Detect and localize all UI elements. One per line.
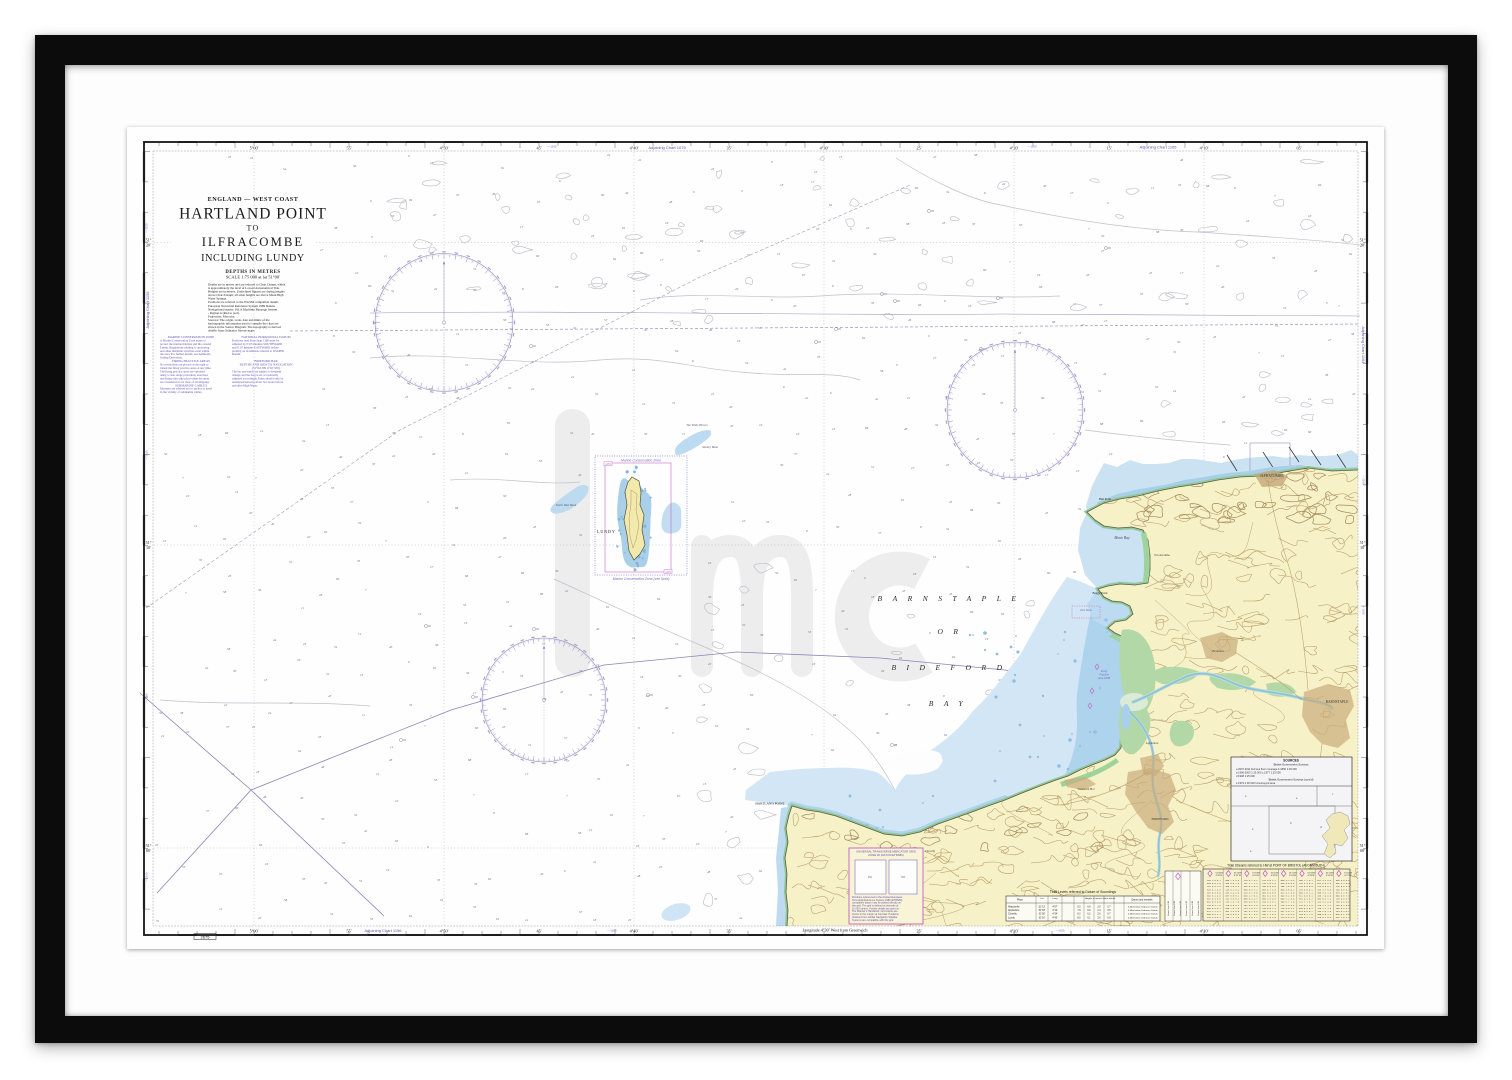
svg-text:Practice: Practice bbox=[1099, 673, 1109, 677]
svg-text:59: 59 bbox=[1078, 507, 1082, 511]
svg-text:31: 31 bbox=[156, 919, 160, 923]
svg-text:BAY: BAY bbox=[929, 699, 973, 708]
svg-text:4°25′W: 4°25′W bbox=[1308, 875, 1316, 877]
svg-text:Stanley Bank: Stanley Bank bbox=[702, 445, 718, 449]
svg-text:4.66m below Ordnance Datum: 4.66m below Ordnance Datum bbox=[1128, 913, 1158, 916]
svg-text:67: 67 bbox=[677, 794, 681, 798]
svg-text:52: 52 bbox=[322, 387, 326, 391]
svg-text:50: 50 bbox=[1177, 340, 1181, 344]
svg-text:51: 51 bbox=[731, 500, 735, 504]
svg-text:7: 7 bbox=[643, 814, 645, 818]
svg-text:7: 7 bbox=[255, 476, 257, 480]
svg-text:27: 27 bbox=[911, 466, 915, 470]
svg-text:38: 38 bbox=[907, 703, 911, 707]
svg-text:32: 32 bbox=[452, 543, 456, 547]
svg-text:19: 19 bbox=[418, 612, 422, 616]
svg-text:56: 56 bbox=[982, 392, 986, 396]
svg-text:13: 13 bbox=[1076, 469, 1080, 473]
svg-text:Braunton: Braunton bbox=[1212, 649, 1224, 653]
svg-text:7: 7 bbox=[815, 588, 817, 592]
svg-text:4°20': 4°20' bbox=[1010, 146, 1019, 151]
svg-text:68: 68 bbox=[1206, 184, 1210, 188]
svg-text:10: 10 bbox=[186, 494, 190, 498]
svg-text:Hours from HW: Hours from HW bbox=[1167, 900, 1170, 916]
svg-text:20: 20 bbox=[258, 916, 262, 920]
svg-text:51: 51 bbox=[871, 465, 875, 469]
svg-text:37: 37 bbox=[794, 452, 798, 456]
svg-text:9: 9 bbox=[672, 731, 674, 735]
svg-text:22: 22 bbox=[805, 396, 809, 400]
svg-text:102 1.9 2.7: 102 1.9 2.7 bbox=[1336, 916, 1350, 919]
svg-text:—1165: —1165 bbox=[1027, 145, 1037, 149]
svg-text:67: 67 bbox=[579, 910, 583, 914]
svg-text:Woolacombe: Woolacombe bbox=[1154, 553, 1170, 557]
svg-text:49: 49 bbox=[729, 405, 733, 409]
svg-text:17: 17 bbox=[1180, 271, 1184, 275]
svg-text:43: 43 bbox=[1242, 395, 1246, 399]
svg-text:d 1948 1:25 000: d 1948 1:25 000 bbox=[1236, 774, 1255, 778]
svg-text:45: 45 bbox=[560, 690, 564, 694]
svg-text:British Government Surveys: British Government Surveys bbox=[1274, 763, 1309, 767]
svg-text:66: 66 bbox=[465, 574, 469, 578]
svg-text:45: 45 bbox=[976, 437, 980, 441]
svg-text:4°30': 4°30' bbox=[820, 146, 829, 151]
svg-text:26: 26 bbox=[1018, 557, 1022, 561]
svg-text:40: 40 bbox=[1043, 184, 1047, 188]
svg-text:10: 10 bbox=[759, 423, 763, 427]
svg-text:25': 25' bbox=[917, 929, 922, 934]
svg-text:61: 61 bbox=[901, 498, 905, 502]
svg-text:40: 40 bbox=[389, 645, 393, 649]
svg-text:a 2007-2011 Full sea floor: a 2007-2011 Full sea floor coverage b 18… bbox=[1236, 767, 1297, 771]
svg-text:27: 27 bbox=[1070, 191, 1074, 195]
svg-text:126 7.7 1.8: 126 7.7 1.8 bbox=[1225, 916, 1239, 919]
svg-text:4°23′W: 4°23′W bbox=[1271, 875, 1279, 877]
svg-text:20: 20 bbox=[300, 468, 304, 472]
svg-text:19: 19 bbox=[985, 637, 989, 641]
svg-text:43: 43 bbox=[902, 589, 906, 593]
svg-text:51°03′N: 51°03′N bbox=[1289, 873, 1297, 875]
svg-text:Adjoining Chart 1156: Adjoining Chart 1156 bbox=[364, 928, 402, 933]
svg-text:33: 33 bbox=[437, 878, 441, 882]
svg-text:46: 46 bbox=[709, 328, 713, 332]
svg-text:47: 47 bbox=[289, 701, 293, 705]
svg-text:TO: TO bbox=[247, 224, 260, 233]
svg-text:52: 52 bbox=[595, 392, 599, 396]
svg-text:52: 52 bbox=[1155, 385, 1159, 389]
svg-text:62: 62 bbox=[433, 666, 437, 670]
svg-text:10: 10 bbox=[696, 842, 700, 846]
svg-text:66: 66 bbox=[225, 431, 229, 435]
svg-text:10: 10 bbox=[796, 432, 800, 436]
svg-text:32: 32 bbox=[935, 423, 939, 427]
svg-text:—1165: —1165 bbox=[547, 145, 557, 149]
svg-text:40: 40 bbox=[271, 522, 275, 526]
svg-text:—1165: —1165 bbox=[145, 450, 149, 460]
svg-text:05': 05' bbox=[1297, 929, 1302, 934]
svg-text:36: 36 bbox=[997, 501, 1001, 505]
svg-text:47: 47 bbox=[433, 213, 437, 217]
svg-text:58: 58 bbox=[223, 590, 227, 594]
svg-text:12: 12 bbox=[632, 368, 636, 372]
svg-text:19: 19 bbox=[1109, 452, 1113, 456]
svg-text:Baggy Point: Baggy Point bbox=[1093, 591, 1108, 595]
svg-text:64: 64 bbox=[833, 713, 837, 717]
svg-text:43: 43 bbox=[328, 694, 332, 698]
svg-text:55: 55 bbox=[1140, 292, 1144, 296]
svg-text:66: 66 bbox=[540, 592, 544, 596]
svg-text:20: 20 bbox=[735, 287, 739, 291]
svg-text:60: 60 bbox=[475, 726, 479, 730]
svg-text:—1165: —1165 bbox=[145, 223, 149, 233]
svg-text:4°20': 4°20' bbox=[1010, 929, 1019, 934]
svg-text:18: 18 bbox=[780, 183, 784, 187]
svg-text:278 5.9 6.3: 278 5.9 6.3 bbox=[1281, 916, 1295, 919]
svg-text:56: 56 bbox=[503, 318, 507, 322]
svg-text:54: 54 bbox=[330, 912, 334, 916]
svg-text:13: 13 bbox=[711, 628, 715, 632]
svg-text:22: 22 bbox=[638, 158, 642, 162]
svg-text:59: 59 bbox=[644, 432, 648, 436]
svg-text:51°03′N: 51°03′N bbox=[1216, 873, 1224, 875]
svg-text:44: 44 bbox=[1002, 182, 1006, 186]
svg-text:16: 16 bbox=[636, 844, 640, 848]
svg-text:Adjoining Chart 1156: Adjoining Chart 1156 bbox=[145, 291, 150, 329]
svg-text:59: 59 bbox=[1010, 458, 1014, 462]
svg-text:6: 6 bbox=[371, 235, 373, 239]
svg-text:9: 9 bbox=[1326, 301, 1328, 305]
svg-text:17: 17 bbox=[705, 297, 709, 301]
svg-text:51°03′N: 51°03′N bbox=[1234, 873, 1242, 875]
svg-text:in the vicinity of submarine c: in the vicinity of submarine cables. bbox=[160, 390, 202, 394]
svg-text:8: 8 bbox=[692, 359, 694, 363]
svg-text:69: 69 bbox=[750, 693, 754, 697]
svg-text:42: 42 bbox=[364, 829, 368, 833]
svg-text:38: 38 bbox=[1351, 332, 1355, 336]
svg-text:27: 27 bbox=[430, 565, 434, 569]
svg-text:55: 55 bbox=[1272, 256, 1276, 260]
svg-text:62: 62 bbox=[759, 869, 763, 873]
svg-text:38: 38 bbox=[1156, 230, 1160, 234]
svg-text:54: 54 bbox=[675, 349, 679, 353]
svg-text:15: 15 bbox=[326, 423, 330, 427]
svg-text:47: 47 bbox=[1081, 323, 1085, 327]
svg-text:13: 13 bbox=[360, 673, 364, 677]
svg-text:27: 27 bbox=[933, 356, 937, 360]
svg-text:68: 68 bbox=[1100, 422, 1104, 426]
svg-text:25: 25 bbox=[591, 234, 595, 238]
svg-text:6: 6 bbox=[335, 301, 337, 305]
svg-text:8: 8 bbox=[771, 160, 773, 164]
svg-text:55: 55 bbox=[715, 724, 719, 728]
svg-text:4°40': 4°40' bbox=[630, 146, 639, 151]
svg-text:51: 51 bbox=[672, 401, 676, 405]
svg-text:10: 10 bbox=[355, 271, 359, 275]
svg-text:25: 25 bbox=[628, 918, 632, 922]
svg-text:11: 11 bbox=[682, 432, 685, 436]
svg-text:51°03′N: 51°03′N bbox=[1252, 873, 1260, 875]
svg-text:BIDEFORD: BIDEFORD bbox=[891, 663, 1012, 672]
svg-text:ILFRACOMBE: ILFRACOMBE bbox=[202, 235, 304, 249]
svg-text:Datum and remarks: Datum and remarks bbox=[1132, 899, 1154, 902]
svg-text:337 4.0 7.7: 337 4.0 7.7 bbox=[1244, 916, 1258, 919]
svg-text:7: 7 bbox=[1338, 304, 1340, 308]
svg-text:13: 13 bbox=[703, 782, 707, 786]
svg-text:37: 37 bbox=[350, 500, 354, 504]
svg-text:54: 54 bbox=[334, 645, 338, 649]
svg-text:56: 56 bbox=[353, 164, 357, 168]
svg-text:Longitude 4°30′ West from Gree: Longitude 4°30′ West from Greenwich bbox=[803, 928, 869, 933]
svg-text:4°24': 4°24' bbox=[1052, 914, 1058, 916]
svg-text:54: 54 bbox=[966, 565, 970, 569]
svg-text:21: 21 bbox=[711, 392, 715, 396]
svg-text:8: 8 bbox=[850, 227, 852, 231]
svg-text:21: 21 bbox=[907, 396, 911, 400]
svg-text:49: 49 bbox=[432, 452, 436, 456]
svg-text:29: 29 bbox=[297, 658, 301, 662]
svg-text:62: 62 bbox=[831, 748, 835, 752]
svg-text:8: 8 bbox=[333, 334, 335, 338]
svg-text:00': 00' bbox=[146, 848, 151, 853]
svg-text:52: 52 bbox=[289, 560, 293, 564]
svg-text:15: 15 bbox=[1074, 361, 1078, 365]
svg-text:52: 52 bbox=[742, 623, 746, 627]
svg-text:62: 62 bbox=[488, 877, 492, 881]
svg-text:60: 60 bbox=[970, 610, 974, 614]
svg-text:6: 6 bbox=[633, 289, 635, 293]
svg-text:35: 35 bbox=[1000, 401, 1004, 405]
svg-text:Heights in metres above datum: Heights in metres above datum bbox=[1085, 897, 1115, 900]
svg-text:4°50': 4°50' bbox=[440, 146, 449, 151]
svg-text:58: 58 bbox=[880, 369, 884, 373]
svg-text:37: 37 bbox=[714, 897, 718, 901]
svg-text:52: 52 bbox=[227, 475, 231, 479]
svg-text:16: 16 bbox=[640, 675, 644, 679]
svg-text:8: 8 bbox=[462, 432, 464, 436]
svg-text:8: 8 bbox=[1015, 634, 1017, 638]
svg-text:40: 40 bbox=[591, 432, 595, 436]
svg-text:51°03′N: 51°03′N bbox=[1271, 873, 1279, 875]
svg-text:40: 40 bbox=[1221, 285, 1225, 289]
svg-text:—1165: —1165 bbox=[1362, 605, 1366, 615]
svg-text:51: 51 bbox=[419, 435, 423, 439]
svg-text:35: 35 bbox=[372, 462, 376, 466]
svg-text:27: 27 bbox=[1328, 338, 1332, 342]
svg-text:49: 49 bbox=[841, 609, 845, 613]
svg-text:6: 6 bbox=[830, 391, 832, 395]
svg-text:INCLUDING LUNDY: INCLUDING LUNDY bbox=[201, 253, 305, 264]
svg-text:11: 11 bbox=[384, 254, 387, 258]
svg-text:7: 7 bbox=[811, 733, 813, 737]
svg-text:Adjoining Chart 1076: Adjoining Chart 1076 bbox=[648, 145, 686, 150]
svg-text:35: 35 bbox=[199, 558, 203, 562]
svg-text:51°03′N: 51°03′N bbox=[1308, 873, 1316, 875]
svg-text:51°03′N: 51°03′N bbox=[1344, 873, 1352, 875]
svg-text:18: 18 bbox=[593, 918, 597, 922]
svg-text:61: 61 bbox=[610, 813, 614, 817]
svg-text:33: 33 bbox=[871, 301, 875, 305]
svg-text:50: 50 bbox=[1185, 302, 1189, 306]
svg-text:35: 35 bbox=[474, 882, 478, 886]
svg-text:22: 22 bbox=[866, 226, 870, 230]
svg-text:14: 14 bbox=[235, 490, 239, 494]
svg-text:44: 44 bbox=[273, 638, 277, 642]
svg-text:16: 16 bbox=[1037, 273, 1041, 277]
svg-text:62: 62 bbox=[998, 539, 1002, 543]
svg-text:Lundy: Lundy bbox=[1008, 916, 1016, 919]
svg-text:19: 19 bbox=[1283, 306, 1287, 310]
svg-text:Appledore: Appledore bbox=[1146, 741, 1159, 745]
svg-text:Adjoining Chart 1165: Adjoining Chart 1165 bbox=[1139, 145, 1177, 150]
svg-text:46: 46 bbox=[540, 872, 544, 876]
svg-text:53: 53 bbox=[463, 603, 467, 607]
svg-text:34: 34 bbox=[946, 190, 950, 194]
svg-text:20: 20 bbox=[249, 511, 253, 515]
svg-text:35: 35 bbox=[766, 520, 770, 524]
svg-text:23: 23 bbox=[228, 574, 232, 578]
svg-text:50: 50 bbox=[406, 555, 410, 559]
svg-text:38: 38 bbox=[760, 633, 764, 637]
svg-text:49: 49 bbox=[578, 473, 582, 477]
svg-text:—1165: —1165 bbox=[145, 693, 149, 703]
svg-text:45': 45' bbox=[537, 929, 542, 934]
svg-text:4°10': 4°10' bbox=[1200, 929, 1209, 934]
svg-text:43: 43 bbox=[324, 881, 328, 885]
svg-text:46: 46 bbox=[407, 353, 411, 357]
svg-text:034 5.2 7.8: 034 5.2 7.8 bbox=[1299, 916, 1313, 919]
svg-text:60: 60 bbox=[915, 186, 919, 190]
svg-text:19: 19 bbox=[386, 868, 390, 872]
svg-text:22: 22 bbox=[392, 454, 396, 458]
svg-text:66: 66 bbox=[970, 508, 974, 512]
svg-text:60: 60 bbox=[536, 254, 540, 258]
svg-text:20: 20 bbox=[503, 536, 507, 540]
svg-text:9: 9 bbox=[427, 500, 429, 504]
svg-text:ZONE 30 (DATUM ETRS89): ZONE 30 (DATUM ETRS89) bbox=[868, 853, 903, 857]
svg-text:45: 45 bbox=[730, 424, 734, 428]
svg-text:5°00': 5°00' bbox=[250, 146, 259, 151]
svg-text:Hours from HW: Hours from HW bbox=[1173, 900, 1176, 916]
svg-text:BIDEFORD: BIDEFORD bbox=[1152, 817, 1170, 821]
svg-text:chiefly from Ordnance Survey m: chiefly from Ordnance Survey maps. bbox=[208, 329, 255, 333]
svg-text:54: 54 bbox=[473, 267, 477, 271]
svg-text:52: 52 bbox=[697, 249, 701, 253]
svg-text:51°03′N: 51°03′N bbox=[1326, 873, 1334, 875]
svg-text:18: 18 bbox=[198, 433, 202, 437]
svg-text:The White Horses: The White Horses bbox=[686, 423, 708, 427]
svg-text:51°00': 51°00' bbox=[1039, 914, 1046, 916]
svg-text:23: 23 bbox=[1018, 331, 1022, 335]
svg-text:12: 12 bbox=[376, 772, 380, 776]
svg-text:8: 8 bbox=[806, 529, 808, 533]
svg-text:7: 7 bbox=[185, 591, 187, 595]
svg-text:25: 25 bbox=[972, 363, 976, 367]
svg-text:7: 7 bbox=[365, 588, 367, 592]
svg-text:12: 12 bbox=[632, 636, 636, 640]
svg-text:24: 24 bbox=[1173, 389, 1177, 393]
svg-text:51°10': 51°10' bbox=[1039, 917, 1046, 919]
svg-text:6: 6 bbox=[638, 726, 640, 730]
svg-text:6: 6 bbox=[427, 845, 429, 849]
svg-text:12: 12 bbox=[589, 828, 593, 832]
svg-text:50: 50 bbox=[1019, 223, 1023, 227]
svg-text:44: 44 bbox=[1103, 372, 1107, 376]
svg-text:Clovelly: Clovelly bbox=[925, 849, 936, 853]
svg-text:52: 52 bbox=[354, 813, 358, 817]
svg-text:Systems are compatible with th: Systems are compatible with this grid. bbox=[852, 919, 894, 922]
svg-text:4°26′W: 4°26′W bbox=[1326, 875, 1334, 877]
svg-text:175 1.0 6.1: 175 1.0 6.1 bbox=[1207, 916, 1221, 919]
svg-text:8: 8 bbox=[522, 287, 524, 291]
svg-text:LUNDY: LUNDY bbox=[597, 529, 616, 534]
svg-text:9: 9 bbox=[928, 334, 930, 338]
svg-text:ILFRACOMBE: ILFRACOMBE bbox=[1260, 474, 1284, 478]
svg-text:17: 17 bbox=[473, 691, 477, 695]
svg-text:6: 6 bbox=[984, 191, 986, 195]
svg-text:69: 69 bbox=[336, 577, 340, 581]
svg-text:51: 51 bbox=[528, 743, 532, 747]
svg-text:13: 13 bbox=[839, 155, 843, 159]
svg-text:BARNSTAPLE: BARNSTAPLE bbox=[1326, 700, 1350, 704]
svg-text:Ilfracombe: Ilfracombe bbox=[1008, 906, 1020, 909]
svg-text:9: 9 bbox=[370, 199, 372, 203]
svg-text:32: 32 bbox=[579, 533, 583, 537]
svg-text:1179: 1179 bbox=[605, 462, 611, 466]
svg-text:28: 28 bbox=[319, 593, 323, 597]
svg-text:30: 30 bbox=[780, 463, 784, 467]
svg-text:64: 64 bbox=[657, 597, 661, 601]
svg-text:52: 52 bbox=[326, 672, 330, 676]
svg-text:55: 55 bbox=[370, 917, 374, 921]
svg-text:40: 40 bbox=[665, 706, 669, 710]
svg-text:7: 7 bbox=[566, 794, 568, 798]
svg-text:4°20′W: 4°20′W bbox=[1216, 875, 1224, 877]
svg-text:66: 66 bbox=[503, 707, 507, 711]
svg-text:45: 45 bbox=[1213, 335, 1217, 339]
svg-text:372 7.0 4.5: 372 7.0 4.5 bbox=[1262, 916, 1276, 919]
svg-text:58: 58 bbox=[284, 898, 288, 902]
svg-text:36: 36 bbox=[435, 643, 439, 647]
svg-text:9: 9 bbox=[896, 363, 898, 367]
svg-text:64: 64 bbox=[952, 655, 956, 659]
svg-text:27: 27 bbox=[320, 248, 324, 252]
svg-text:25: 25 bbox=[1045, 511, 1049, 515]
svg-text:22: 22 bbox=[224, 703, 228, 707]
svg-text:65: 65 bbox=[259, 843, 263, 847]
svg-text:a 1996-2003 1:25 000: a 1996-2003 1:25 000 c 1977 1:25 000 bbox=[1236, 771, 1281, 775]
svg-text:8: 8 bbox=[1223, 455, 1225, 459]
svg-text:51°03': 51°03' bbox=[1039, 910, 1046, 912]
svg-text:59: 59 bbox=[358, 521, 362, 525]
svg-text:58: 58 bbox=[227, 647, 231, 651]
svg-text:19: 19 bbox=[737, 339, 741, 343]
svg-text:64: 64 bbox=[829, 203, 833, 207]
svg-text:10: 10 bbox=[816, 227, 820, 231]
svg-text:13: 13 bbox=[163, 539, 167, 543]
svg-text:31: 31 bbox=[1173, 350, 1177, 354]
svg-text:Marine Conservation Zone: Marine Conservation Zone bbox=[621, 459, 661, 463]
svg-text:32: 32 bbox=[456, 193, 460, 197]
svg-text:4W: 4W bbox=[868, 875, 873, 879]
svg-text:10: 10 bbox=[395, 799, 399, 803]
svg-text:7: 7 bbox=[1258, 351, 1260, 355]
svg-text:9: 9 bbox=[741, 189, 743, 193]
svg-text:10': 10' bbox=[146, 545, 151, 550]
svg-text:Westward Ho!: Westward Ho! bbox=[1077, 787, 1094, 791]
svg-text:52: 52 bbox=[570, 431, 574, 435]
svg-text:51: 51 bbox=[506, 600, 510, 604]
svg-text:14: 14 bbox=[260, 429, 264, 433]
